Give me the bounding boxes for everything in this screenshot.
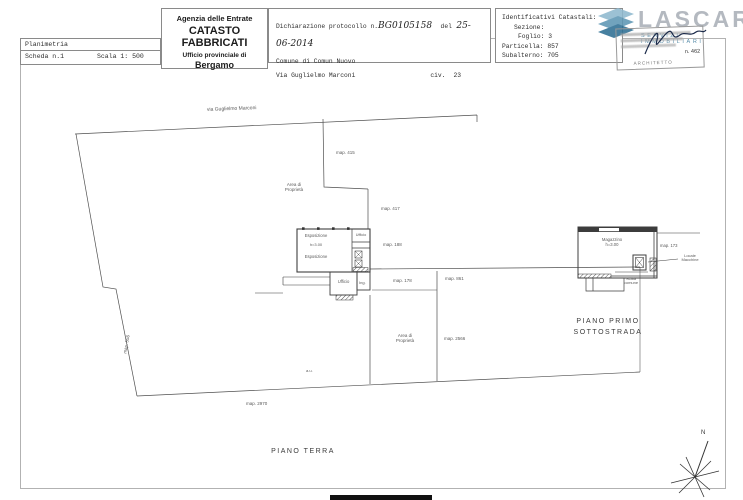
area-proprieta-label-2: Area di Proprietà (385, 334, 425, 344)
room-label-ufficio-2: Ufficio (332, 280, 355, 285)
scan-strip (330, 495, 432, 500)
parcel-label-map417: map. 417 (381, 207, 400, 212)
scheda-label: Scheda n.1 (25, 53, 64, 60)
misc-tiny-label: a.u. (306, 369, 313, 373)
via-line: Via Guglielmo Marconi (276, 72, 355, 79)
planimetria-box: Planimetria Scheda n.1 Scala 1: 500 (20, 38, 161, 65)
parcel-label-map173: map. 173 (660, 244, 677, 249)
room-height-label: h=3.00 (303, 243, 329, 247)
compass-rose-icon (671, 441, 719, 497)
room-label-esposizione-1: Esposizione (296, 234, 336, 239)
del-label: del (441, 23, 452, 30)
agenzia-line4: Bergamo (162, 60, 267, 70)
parcel-label-map178: map. 178 (393, 279, 412, 284)
parcel-label-map2970: map. 2970 (246, 402, 267, 407)
caption-piano-terra: PIANO TERRA (253, 448, 353, 455)
caption-piano-primo: PIANO PRIMO SOTTOSTRADA (558, 316, 658, 338)
parcel-label-map188: map. 188 (383, 243, 402, 248)
comune-line: Comune di Comun Nuovo (276, 58, 483, 65)
room-label-scala-comune: Scala comune (618, 277, 644, 286)
agenzia-entrate-box: Agenzia delle Entrate CATASTO FABBRICATI… (161, 8, 268, 69)
civ-number: 23 (453, 72, 461, 79)
room-label-magazzino: Magazzino h=3.00 (592, 238, 632, 247)
protocollo-number: BG0105158 (378, 21, 432, 31)
catastali-subalterno: Subalterno: 705 (502, 51, 616, 61)
room-label-esposizione-2: Esposizione (296, 255, 336, 260)
room-label-locale-macchine: Locale Macchine (677, 254, 703, 263)
parcel-label-map2566: map. 2566 (444, 337, 465, 342)
room-label-ing: Ing. (359, 281, 366, 285)
agenzia-line1: Agenzia delle Entrate (162, 14, 267, 23)
north-label: N (701, 430, 705, 437)
agenzia-line3: Ufficio provinciale di (162, 52, 267, 59)
dichiarazione-box: Dichiarazione protocollo n.BG0105158 del… (268, 8, 491, 63)
civ-label: civ. (430, 72, 445, 79)
protocollo-label: Dichiarazione protocollo n. (276, 23, 378, 30)
scanned-cadastral-sheet: via Guglielmo Marconi map. 556 Area di P… (0, 0, 743, 500)
signature-squiggle (640, 24, 710, 62)
planimetria-title: Planimetria (21, 39, 160, 51)
room-label-ufficio-1: Ufficio (352, 233, 370, 237)
parcel-label-map415: map. 415 (336, 151, 355, 156)
parcel-label-map861: map. 861 (445, 277, 464, 282)
agenzia-line2: CATASTO FABBRICATI (162, 25, 267, 49)
area-proprieta-label-1: Area di Proprietà (274, 183, 314, 193)
scala-label: Scala 1: 500 (97, 53, 144, 60)
